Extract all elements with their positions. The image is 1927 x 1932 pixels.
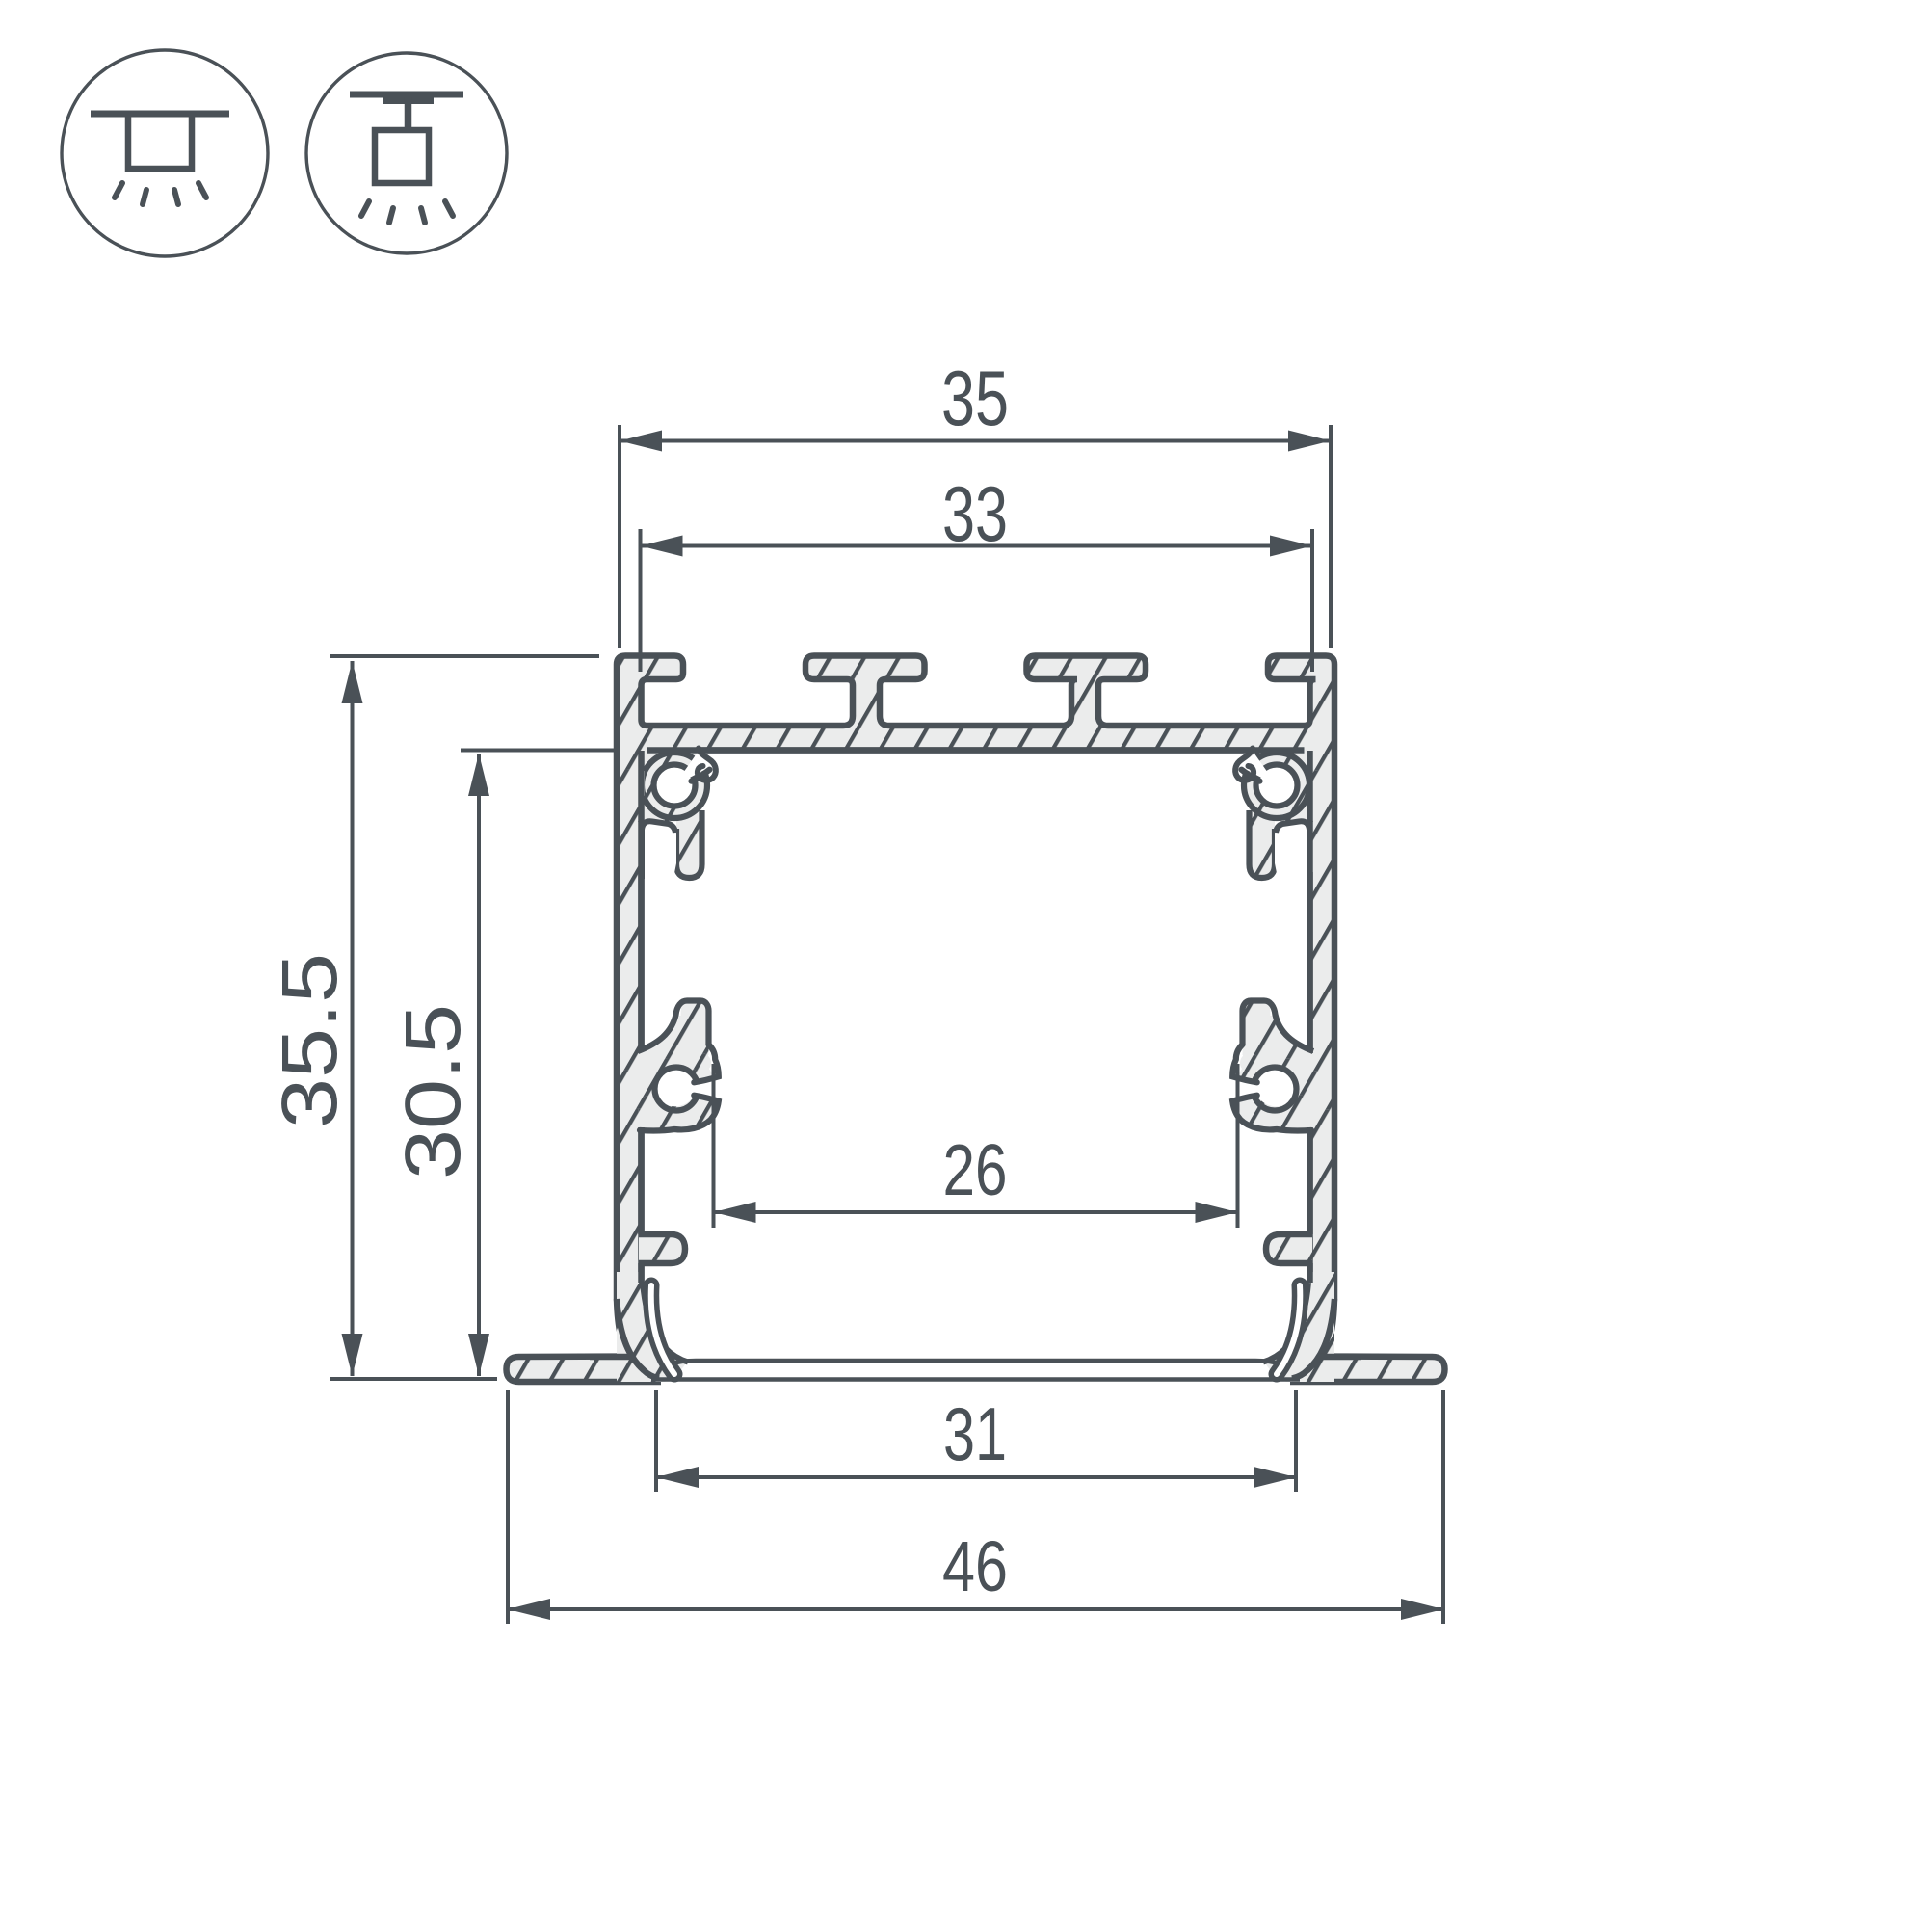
svg-text:30.5: 30.5 <box>389 1004 477 1179</box>
svg-text:26: 26 <box>943 1129 1008 1210</box>
svg-text:31: 31 <box>943 1391 1007 1476</box>
svg-text:33: 33 <box>942 471 1008 558</box>
svg-text:46: 46 <box>942 1526 1008 1606</box>
svg-text:35.5: 35.5 <box>266 953 354 1128</box>
svg-text:35: 35 <box>941 356 1009 442</box>
